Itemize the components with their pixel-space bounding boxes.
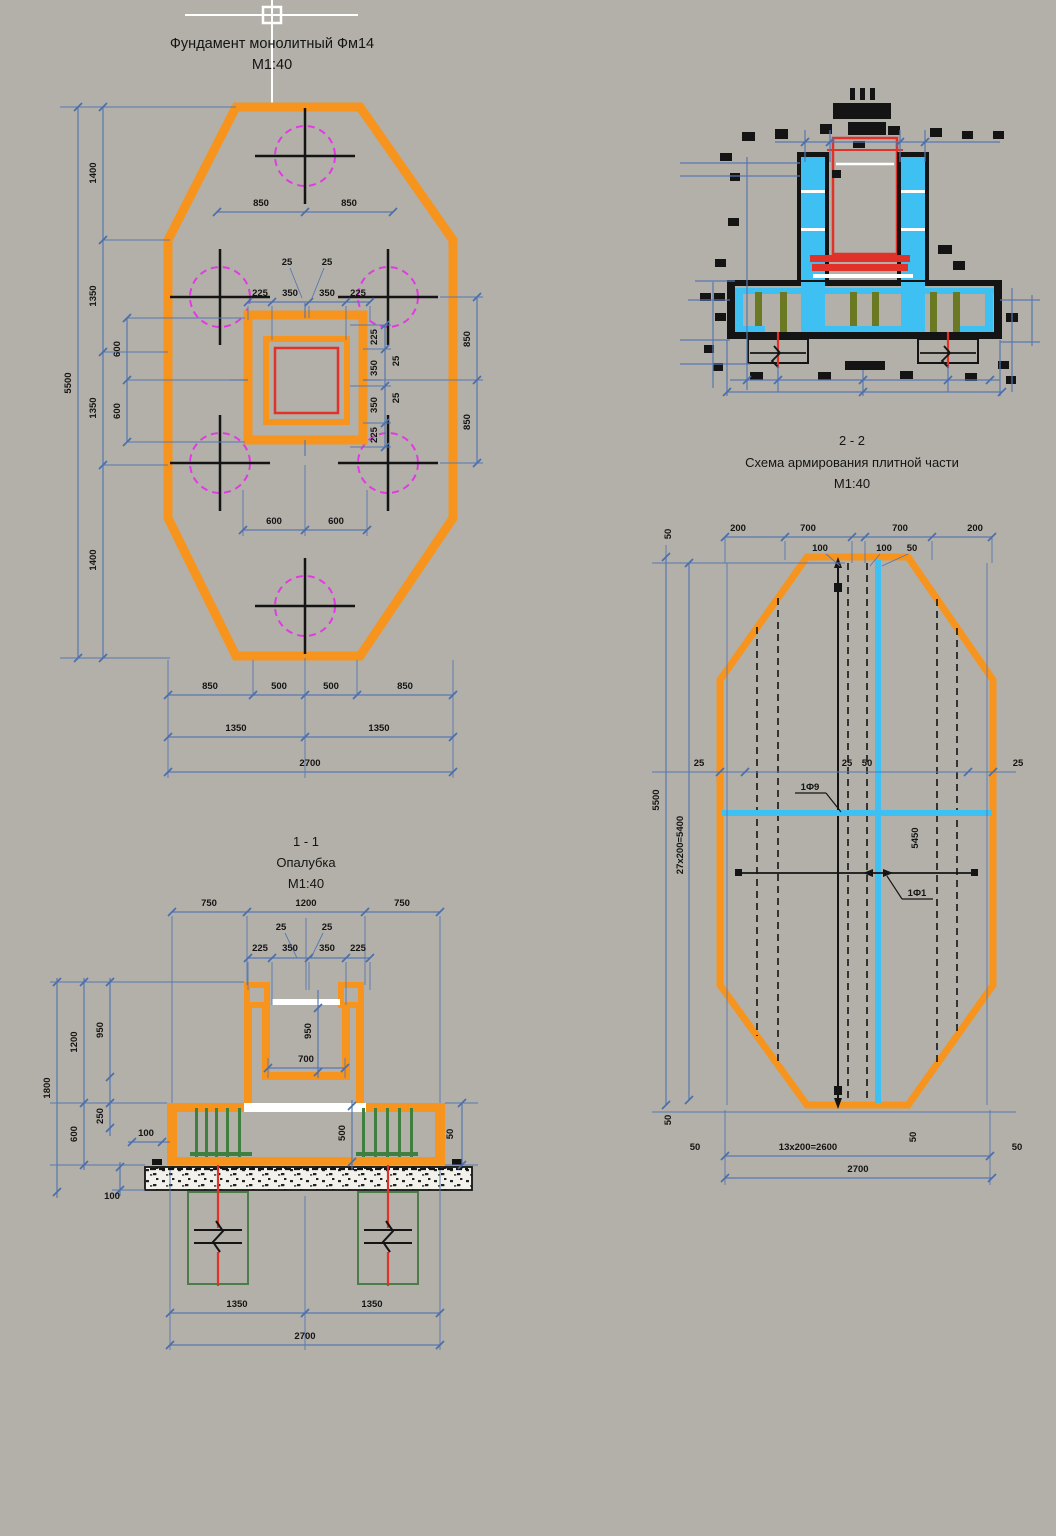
prep-end-right (452, 1159, 462, 1165)
formwork-waler-left (247, 985, 267, 1005)
slab-top-chord (727, 280, 1002, 286)
dim-label: 1200 (69, 1031, 80, 1052)
crosshair-cursor (185, 0, 358, 107)
dim-label: 1400 (88, 549, 99, 570)
formwork-waler-right (341, 985, 361, 1005)
dim-label: 1350 (88, 397, 99, 418)
dim-label: 500 (271, 681, 287, 692)
red-rebar-band1 (810, 255, 910, 262)
slab-outline-rebar-plan (720, 557, 993, 1105)
plan-title-line2: М1:40 (252, 57, 292, 73)
dim-label: 600 (266, 516, 282, 527)
dim-label: 1350 (226, 1299, 247, 1310)
dim-label: 850 (462, 331, 473, 347)
dim-label: 700 (298, 1054, 314, 1065)
slab-end-left (727, 280, 735, 338)
section11-title-line3: М1:40 (288, 876, 324, 891)
dim-label: 1800 (42, 1077, 53, 1098)
dim-label: 500 (323, 681, 339, 692)
dim-label: 350 (319, 288, 335, 299)
section22-title-line2: Схема армирования плитной части (745, 455, 959, 470)
dim-label: 350 (282, 288, 298, 299)
formwork-studs (190, 1108, 418, 1157)
section22-title: 2 - 2 Схема армирования плитной части М1… (745, 433, 959, 491)
dim-label: 200 (730, 523, 746, 534)
dim-label: 225 (350, 288, 367, 299)
square-axis-ticks (230, 303, 381, 456)
dim-label: 1400 (88, 162, 99, 183)
dim-label: 225 (252, 943, 269, 954)
dim-label: 5450 (910, 827, 921, 848)
slab-top-gap (244, 1103, 366, 1112)
dim-label: 50 (1012, 1142, 1023, 1153)
section22-title-line1: 2 - 2 (839, 433, 865, 448)
dim-label: 50 (908, 1132, 919, 1143)
slab-end-right (994, 280, 1002, 338)
section22-view (680, 88, 1040, 396)
dim-label: 1350 (225, 723, 246, 734)
dim-label: 50 (663, 1115, 674, 1126)
dim-label: 25 (276, 922, 287, 933)
dim-label: 850 (462, 414, 473, 430)
dim-label: 950 (95, 1022, 106, 1038)
dim-label: 225 (252, 288, 269, 299)
cad-drawing-canvas[interactable]: Фундамент монолитный Фм14 М1:40 850 850 … (0, 0, 1056, 1536)
dim-label: 100 (812, 543, 828, 554)
dim-label: 750 (394, 898, 410, 909)
dim-label: 250 (95, 1108, 106, 1124)
dim-label: 700 (892, 523, 908, 534)
dim-label: 27x200=5400 (675, 816, 686, 874)
dim-label: 350 (282, 943, 298, 954)
dim-label: 25 (282, 257, 293, 268)
dim-label: 600 (112, 341, 123, 357)
rebar-mark: 1Ф9 (801, 782, 820, 793)
red-rebar-band2 (812, 264, 908, 271)
dim-label: 850 (202, 681, 218, 692)
dim-label-total: 5500 (651, 789, 662, 810)
foundation-slab-outline (168, 107, 453, 656)
dim-label: 25 (1013, 758, 1024, 769)
pile-break-symbols (194, 1221, 412, 1252)
drawing-sheet: Фундамент монолитный Фм14 М1:40 850 850 … (0, 0, 1056, 1536)
dim-label: 350 (369, 360, 380, 376)
dim-label: 1350 (88, 285, 99, 306)
dim-label: 350 (369, 397, 380, 413)
dim-label: 850 (341, 198, 357, 209)
dim-label: 850 (253, 198, 269, 209)
dim-label: 225 (350, 943, 367, 954)
dim-label: 25 (694, 758, 705, 769)
dim-label: 13x200=2600 (779, 1142, 837, 1153)
dim-label: 500 (337, 1125, 348, 1141)
section11-title: 1 - 1 Опалубка М1:40 (276, 834, 336, 891)
dim-label: 100 (138, 1128, 154, 1139)
rebar-lines (722, 557, 992, 1109)
dim-label: 600 (69, 1126, 80, 1142)
dim-label: 50 (663, 529, 674, 540)
dim-label: 1350 (368, 723, 389, 734)
slab-bottom-chord (727, 332, 1002, 339)
dim-label: 850 (397, 681, 413, 692)
dim-label: 50 (690, 1142, 701, 1153)
dim-label: 225 (369, 426, 380, 443)
dim-label: 600 (112, 403, 123, 419)
column-outline (275, 348, 338, 413)
dim-label: 25 (391, 392, 402, 403)
dim-label: 100 (104, 1191, 120, 1202)
dim-label: 25 (842, 758, 853, 769)
dim-label: 350 (319, 943, 335, 954)
dim-label: 950 (303, 1023, 314, 1039)
dim-label-total: 2700 (299, 758, 320, 769)
prep-end-left (152, 1159, 162, 1165)
dim-label: 1350 (361, 1299, 382, 1310)
section11-title-line2: Опалубка (276, 855, 336, 870)
dim-label: 225 (369, 328, 380, 345)
concrete-prep-layer (145, 1167, 472, 1190)
dim-label: 600 (328, 516, 344, 527)
dim-label: 50 (907, 543, 918, 554)
dim-label: 25 (322, 257, 333, 268)
dim-label: 1200 (295, 898, 316, 909)
dim-label: 50 (445, 1129, 456, 1140)
dim-label: 100 (876, 543, 892, 554)
white-band (813, 274, 913, 278)
rebar-mark: 1Ф1 (908, 888, 927, 899)
dim-label-total: 2700 (847, 1164, 868, 1175)
plan-view (168, 107, 453, 656)
rebar-plan-view: 1Ф9 1Ф1 (720, 557, 993, 1109)
column-section-outline (833, 138, 897, 254)
dim-label-total: 5500 (63, 372, 74, 393)
dim-label: 700 (800, 523, 816, 534)
dim-label: 25 (322, 922, 333, 933)
section22-title-line3: М1:40 (834, 476, 870, 491)
dim-label: 200 (967, 523, 983, 534)
dim-label: 750 (201, 898, 217, 909)
dim-label: 25 (391, 355, 402, 366)
pile-circles (170, 108, 438, 654)
section11-title-line1: 1 - 1 (293, 834, 319, 849)
dim-label-total: 2700 (294, 1331, 315, 1342)
plan-title-line1: Фундамент монолитный Фм14 (170, 36, 374, 52)
dim-label: 50 (862, 758, 873, 769)
cavity-top-strip (272, 999, 340, 1005)
pedestal-inner-square (266, 339, 347, 422)
